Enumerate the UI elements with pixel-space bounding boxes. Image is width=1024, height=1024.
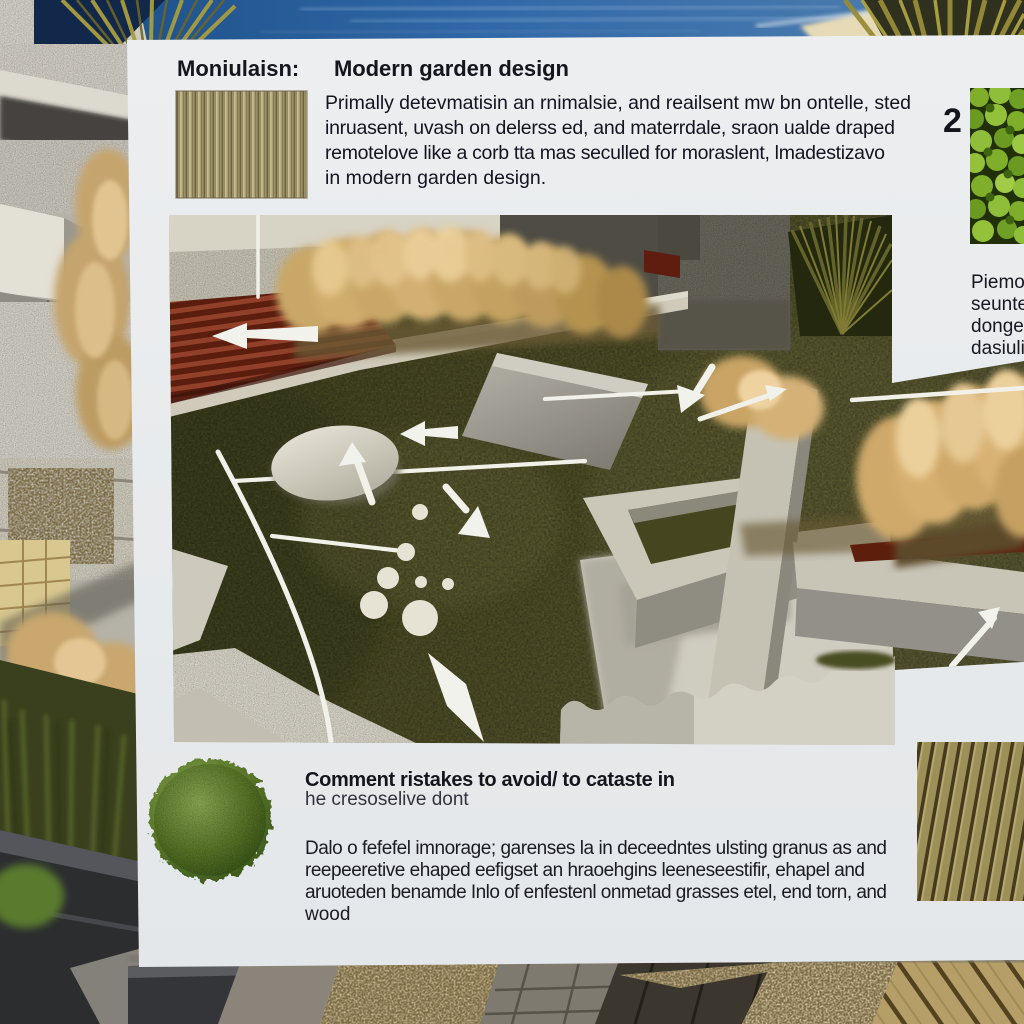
svg-text:Comment ristakes to avoid/ to: Comment ristakes to avoid/ to cataste in — [305, 769, 675, 791]
svg-text:he cresoselive dont: he cresoselive dont — [305, 789, 469, 810]
svg-text:in modern garden design.: in modern garden design. — [325, 167, 546, 189]
svg-text:Modern garden design: Modern garden design — [334, 56, 569, 81]
svg-text:reepeeretive ehaped eefigset a: reepeeretive ehaped eefigset an hraoehgi… — [305, 860, 865, 881]
svg-text:Piemos: Piemos — [971, 272, 1024, 293]
svg-text:dasiuli: dasiuli — [971, 338, 1024, 359]
svg-text:inruasent, uvash on delerss ed: inruasent, uvash on delerss ed, and mate… — [325, 117, 895, 139]
svg-text:donges: donges — [971, 316, 1024, 337]
svg-text:seuntel: seuntel — [971, 294, 1024, 315]
svg-text:2: 2 — [943, 102, 962, 140]
svg-text:Primally detevmatisin an rnima: Primally detevmatisin an rnimalsie, and … — [325, 92, 911, 114]
svg-text:remotelove like a corb tta mas: remotelove like a corb tta mas seculled … — [325, 142, 885, 164]
svg-text:aruoteden benamde Inlo of enfe: aruoteden benamde Inlo of enfestenl onme… — [305, 882, 887, 903]
svg-text:Dalo o fefefel imnorage; garen: Dalo o fefefel imnorage; garenses la in … — [305, 838, 887, 859]
svg-text:Moniulaisn:: Moniulaisn: — [177, 56, 299, 81]
svg-text:wood: wood — [304, 904, 350, 925]
